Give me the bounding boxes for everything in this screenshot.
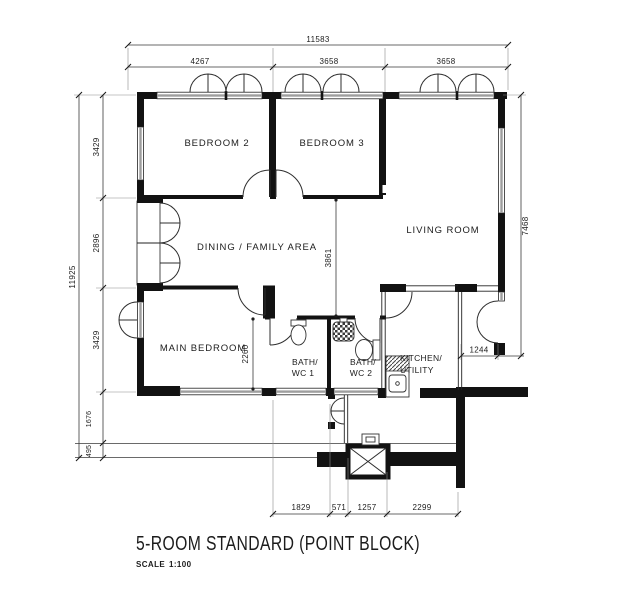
dim-balcony-width: 1244 [470,346,489,355]
kitchen-sink-drain [396,382,400,386]
wall-top-pier-1 [262,92,281,99]
dim-left-4: 1676 [86,411,93,427]
wall-entrance-corridor [344,394,347,443]
wall-balcony-top [477,286,498,291]
refuse-chute-icon [348,434,388,477]
wall-left-1 [137,92,144,127]
dot-1 [334,198,337,201]
wall-bottom-left [137,386,180,396]
room-label-main-bedroom: MAIN BEDROOM [160,343,246,354]
wall-entrance-stub-bottom [328,422,335,429]
window-bath1-bottom-glass [276,390,326,392]
dim-bottom-2: 571 [332,503,346,512]
dim-bottom-1: 1829 [292,503,311,512]
toilet1-bowl [291,325,306,345]
title-block: 5-ROOM STANDARD (POINT BLOCK) SCALE 1:10… [136,533,420,569]
cupboard-swing-b [160,243,180,283]
wall-left-4 [137,338,144,388]
room-label-kitchen-line2: UTILITY [400,365,434,375]
wall-right-1 [498,92,505,128]
casement-mainbed-left [119,302,137,338]
dim-left-2: 2896 [92,233,101,252]
wall-right-cap [494,343,505,355]
dim-top-total: 11583 [306,35,329,44]
door-arc-bedroom3 [276,170,303,197]
dim-left-total: 11925 [68,265,77,288]
dot-3 [251,317,254,320]
room-label-kitchen-line1: KITCHEN/ [400,353,442,363]
wall-bed3-living [379,99,386,195]
sink2-tap [340,318,347,322]
room-label-bath2-line1: BATH/ [350,357,376,367]
dim-top-3: 3658 [437,57,456,66]
room-label-bath1-line1: BATH/ [292,357,318,367]
chute-flange-right [389,452,456,466]
cupboard-swing-a [160,203,180,243]
mullion-tick-3 [456,91,459,100]
dim-bottom-4: 2299 [413,503,432,512]
wall-bedrooms-bottom-b [270,195,276,199]
wall-top-pier-2 [383,92,399,99]
window-mainbed-left-glass [139,302,141,338]
room-label-dining: DINING / FAMILY AREA [197,242,317,253]
window-living-right-glass [500,128,502,213]
wall-kitchen-right [458,292,461,390]
wall-living-bottom-pier [455,284,477,292]
dining-cupboard [137,195,180,291]
floor-plan-drawing: 11583 4267 3658 3658 11925 3429 2896 342… [0,0,644,600]
wall-bath1-bath2 [327,318,331,392]
dim-bottom-3: 1257 [358,503,377,512]
casement-living-a [420,74,456,92]
scale-value: 1:100 [169,560,192,569]
casement-bedroom3-a [285,74,321,92]
scale-label: SCALE [136,560,165,569]
wall-kitchen-left [382,292,385,388]
casement-bedroom2-b [226,74,262,92]
dim-left-1: 3429 [92,137,101,156]
window-bedroom2-left-glass [139,127,141,180]
casement-bedroom3-b [323,74,359,92]
window-swing-arcs [119,74,494,338]
sink-icon-bath2 [333,318,354,341]
wall-bottom-stub-1 [262,388,276,396]
wall-kitchen-top [406,286,458,291]
window-bedroom2-glass [157,94,262,96]
chute-flange-left [317,452,347,467]
dot-4 [251,387,254,390]
window-living-top-glass [399,94,494,96]
toilet-icon-bath1 [291,320,306,345]
sink2-basin [333,322,354,341]
room-label-living: LIVING ROOM [406,225,479,236]
window-bath2-bottom-glass [334,390,378,392]
door-arc-bedroom2 [243,170,270,197]
room-label-bedroom2: BEDROOM 2 [184,138,249,149]
window-mainbed-bottom-glass [180,390,262,392]
mullion-tick-1 [225,91,228,100]
door-arc-main-bedroom [238,288,265,315]
window-balcony-right-glass [500,292,502,301]
wall-kitchen-top-pier [380,284,406,292]
doors [238,170,498,424]
room-label-bath2-line2: WC 2 [350,368,372,378]
walls-interior [137,99,528,488]
dot-2 [334,314,337,317]
window-bedroom3-glass [281,94,383,96]
plan-title: 5-ROOM STANDARD (POINT BLOCK) [136,533,420,555]
wall-bottom-stub-3 [378,388,386,398]
room-label-bedroom3: BEDROOM 3 [299,138,364,149]
casement-bedroom2-a [190,74,226,92]
door-arc-bath2 [355,318,380,343]
wall-bed3-notch [383,185,388,193]
dim-left-5: 495 [86,445,93,457]
chute-hopper-flap [366,437,375,442]
room-labels: BEDROOM 2 BEDROOM 3 LIVING ROOM DINING /… [160,138,480,378]
dim-top-1: 4267 [191,57,210,66]
mullion-tick-2 [321,91,324,100]
wall-service-L [456,387,528,488]
wall-bedrooms-bottom-c [303,195,383,199]
dim-right-height: 7468 [521,216,530,235]
door-arc-entrance [331,398,344,424]
wall-right-2 [498,213,505,292]
cupboard-cap-top [137,195,163,203]
dim-dining-height: 3861 [324,248,333,267]
cupboard-cap-bottom [137,283,163,291]
floor-plan-page: 11583 4267 3658 3658 11925 3429 2896 342… [0,0,644,600]
door-arc-balcony [477,301,498,343]
dim-left-3: 3429 [92,330,101,349]
wall-bath-top-a [265,316,270,320]
dim-top-2: 3658 [320,57,339,66]
door-arc-kitchen [386,292,412,318]
casement-living-b [458,74,494,92]
room-label-bath1-line2: WC 1 [292,368,314,378]
